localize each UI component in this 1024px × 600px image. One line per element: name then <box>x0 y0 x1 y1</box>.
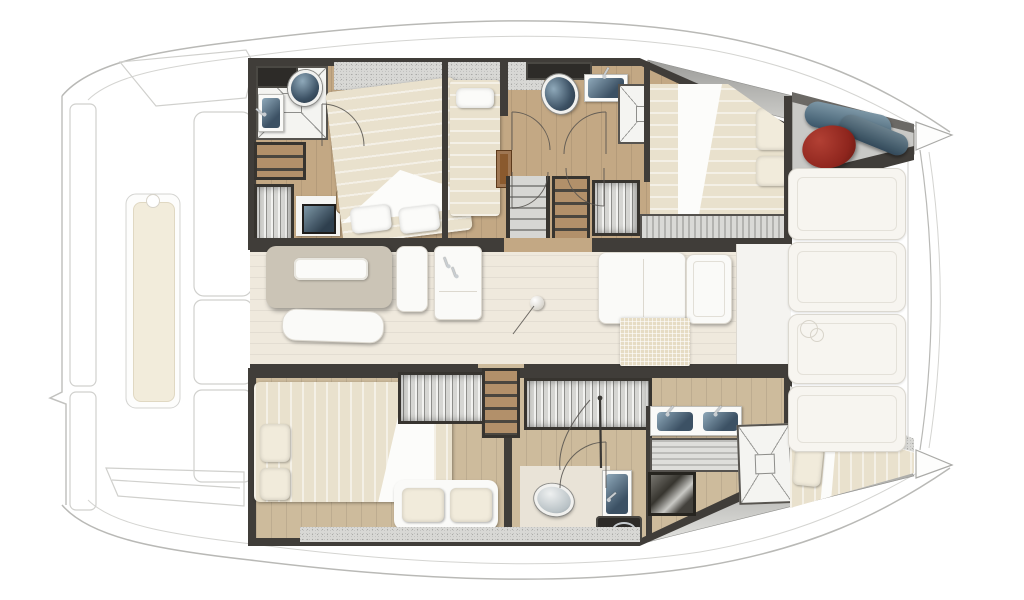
foredeck-panel <box>788 386 906 452</box>
duvet-fold <box>678 84 722 234</box>
forward-cockpit-strip <box>736 244 791 368</box>
saloon-bench <box>281 308 384 344</box>
panel-inset <box>797 251 897 303</box>
galley-mat <box>620 318 690 366</box>
catamaran-floorplan <box>0 0 1024 600</box>
single-berth-bed <box>450 80 500 216</box>
owner-sofa <box>394 480 498 530</box>
cockpit-hatch-ring <box>146 194 160 208</box>
galley-island <box>434 246 482 320</box>
wardrobe-icon <box>524 378 652 430</box>
foredeck-panel <box>788 168 906 240</box>
wardrobe-icon <box>254 184 294 246</box>
saloon-sofa <box>396 246 428 312</box>
bulkhead <box>644 62 650 182</box>
galley-faucet-icon <box>451 267 456 277</box>
unit-inner <box>693 261 725 317</box>
door-knob <box>530 296 544 310</box>
starboard-side-deck <box>300 527 640 542</box>
galley-counter <box>598 252 686 324</box>
washbasin-icon <box>258 94 284 132</box>
pillow-icon <box>260 468 290 500</box>
stairs-icon <box>482 368 520 438</box>
counter-line <box>643 259 644 317</box>
foredeck-panel <box>788 242 906 312</box>
cabin-bulkhead <box>442 62 448 248</box>
saloon-table <box>266 246 392 308</box>
panel-inset <box>797 177 897 231</box>
shower-drain <box>755 454 776 475</box>
vanity-desk <box>296 196 340 236</box>
desk-screen <box>302 204 336 234</box>
basin <box>606 474 628 514</box>
bulkhead <box>504 438 512 538</box>
shower-xfloor-icon <box>737 423 794 505</box>
bathroom-floor <box>650 438 742 472</box>
island-divider <box>439 291 477 292</box>
galley-tall-unit <box>686 254 732 324</box>
deck-hatch-ring <box>810 328 824 342</box>
pillow-icon <box>456 88 494 108</box>
pillow-icon <box>398 204 441 235</box>
serving-tray <box>294 258 368 280</box>
cabin-steps <box>254 142 306 180</box>
corridor-bulkhead <box>500 62 508 116</box>
pillow-icon <box>260 424 290 462</box>
wardrobe-icon <box>592 180 640 236</box>
twin-vanity-counter <box>650 406 742 436</box>
washbasin-icon <box>602 470 632 518</box>
panel-inset <box>797 395 897 443</box>
sink-basin <box>657 412 693 431</box>
sofa-cushion <box>402 488 444 522</box>
stair-opening <box>504 238 592 252</box>
cockpit-bench-cushion <box>133 202 175 402</box>
glass-shower-unit <box>648 472 696 516</box>
galley-faucet-icon <box>443 257 448 267</box>
pillow-icon <box>349 204 392 235</box>
sink-basin <box>703 412 738 431</box>
sofa-cushion <box>450 488 492 522</box>
